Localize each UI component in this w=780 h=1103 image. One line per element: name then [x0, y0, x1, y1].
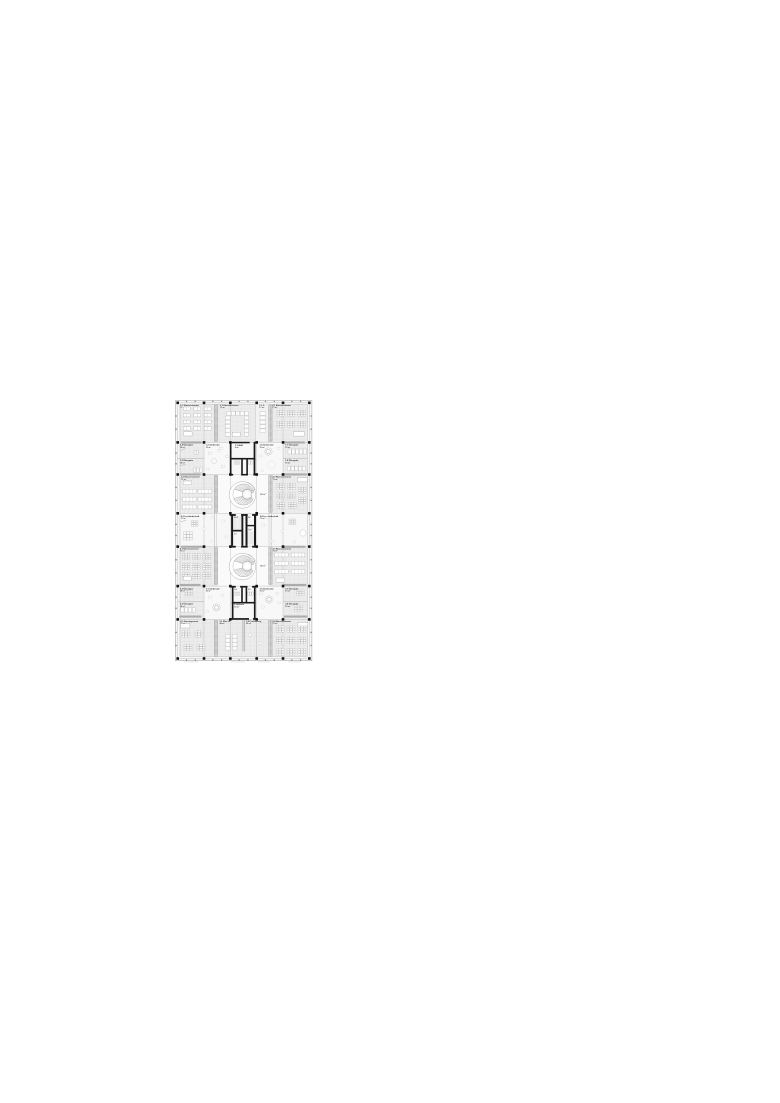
svg-text:82 m²: 82 m²: [260, 493, 266, 496]
svg-text:71 m²: 71 m²: [180, 550, 185, 553]
svg-text:24 m²: 24 m²: [220, 622, 225, 625]
svg-text:31 m²: 31 m²: [260, 446, 265, 449]
svg-text:71 m²: 71 m²: [220, 406, 225, 409]
svg-text:19 m²: 19 m²: [285, 446, 290, 449]
svg-text:3.5: 3.5: [248, 589, 251, 591]
svg-text:31 m²: 31 m²: [206, 446, 211, 449]
svg-text:19 m²: 19 m²: [285, 590, 290, 593]
svg-text:3.4: 3.4: [234, 588, 237, 591]
svg-text:77 m²: 77 m²: [181, 517, 186, 520]
svg-text:9 m²: 9 m²: [235, 446, 239, 449]
svg-text:19 m²: 19 m²: [285, 461, 290, 464]
svg-text:71 m²: 71 m²: [273, 622, 278, 625]
svg-text:80 m²: 80 m²: [260, 565, 266, 568]
svg-text:17 m²: 17 m²: [259, 406, 264, 409]
svg-text:2.6: 2.6: [248, 517, 251, 519]
svg-text:77 m²: 77 m²: [260, 517, 265, 520]
svg-text:19 m²: 19 m²: [180, 605, 185, 608]
svg-text:2.5: 2.5: [234, 534, 236, 536]
svg-text:71 m²: 71 m²: [272, 406, 277, 409]
svg-text:71 m²: 71 m²: [273, 478, 278, 481]
svg-text:31 m²: 31 m²: [206, 590, 211, 593]
svg-text:19 m²: 19 m²: [180, 461, 185, 464]
svg-text:71 m²: 71 m²: [273, 550, 278, 553]
svg-text:19 m²: 19 m²: [180, 590, 185, 593]
svg-text:19 m²: 19 m²: [180, 446, 185, 449]
svg-text:19 m²: 19 m²: [285, 605, 290, 608]
svg-text:39 m²: 39 m²: [246, 622, 251, 625]
svg-text:31 m²: 31 m²: [260, 590, 265, 593]
svg-text:19 m²: 19 m²: [234, 605, 239, 608]
